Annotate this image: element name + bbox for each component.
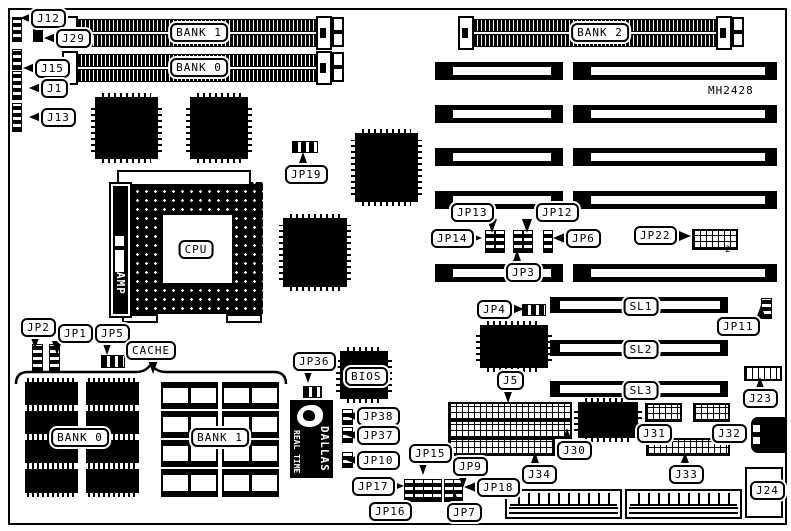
simm-clip (332, 32, 344, 47)
bios-label: BIOS (345, 367, 388, 386)
j30-header (448, 420, 572, 439)
handle-notch (115, 236, 124, 246)
leader-line (562, 428, 572, 442)
cpu-socket-handle-rail: AMP (109, 182, 132, 318)
callout-j23: J23 (743, 389, 778, 408)
leader-line (522, 219, 532, 233)
callout-jp9: JP9 (453, 457, 488, 476)
leader-line (148, 360, 158, 374)
sl1-label: SL1 (624, 297, 659, 316)
cache-chip (86, 469, 139, 493)
leader-line (679, 231, 691, 241)
leader-line (464, 482, 476, 492)
leader-line (29, 112, 41, 122)
rtc-chip: DALLAS REAL TIME (290, 400, 333, 478)
callout-j29: J29 (56, 29, 91, 48)
callout-jp19: JP19 (285, 165, 328, 184)
callout-cache: CACHE (126, 341, 176, 360)
jp22-pin2-label: 2 (725, 245, 731, 255)
cache-bank0-label: BANK 0 (51, 428, 109, 447)
cache-socket (222, 382, 279, 409)
qfp-chip (480, 325, 548, 368)
leader-line (102, 341, 112, 355)
j29-jumper (33, 29, 43, 42)
isa-slot (573, 148, 777, 166)
qfp-chip (283, 218, 347, 287)
callout-jp38: JP38 (357, 407, 400, 426)
callout-j5: J5 (497, 371, 524, 390)
callout-jp22: JP22 (634, 226, 677, 245)
j15-jumper (12, 49, 22, 70)
jp17-jumper (404, 479, 414, 502)
callout-jp15: JP15 (409, 444, 452, 463)
callout-jp17: JP17 (352, 477, 395, 496)
simm-clip (332, 67, 344, 82)
bank1-simm-label: BANK 1 (170, 23, 228, 42)
j32-header (693, 403, 730, 422)
callout-j12: J12 (31, 9, 66, 28)
isa-slot (435, 105, 563, 123)
bank0-simm-label: BANK 0 (170, 58, 228, 77)
callout-jp10: JP10 (357, 451, 400, 470)
cache-bank1-label: BANK 1 (191, 428, 249, 447)
simm-bracket (716, 16, 732, 50)
leader-line (44, 33, 56, 43)
callout-jp4: JP4 (477, 300, 512, 319)
simm-bracket (458, 16, 474, 50)
leader-line (29, 83, 41, 93)
callout-j32: J32 (712, 424, 747, 443)
jp7-jumper (432, 479, 442, 502)
callout-j33: J33 (669, 465, 704, 484)
callout-j24: J24 (750, 481, 785, 500)
handle-notch (115, 250, 124, 272)
power-connector (505, 489, 622, 519)
simm-clip (332, 52, 344, 67)
leader-line (680, 452, 690, 466)
isa-slot (573, 105, 777, 123)
callout-jp18: JP18 (477, 478, 520, 497)
power-connector (625, 489, 742, 519)
isa-slot (573, 191, 777, 209)
jp13-jumper (495, 230, 505, 253)
bank2-simm-label: BANK 2 (571, 23, 629, 42)
callout-jp36: JP36 (293, 352, 336, 371)
callout-jp12: JP12 (536, 203, 579, 222)
j5-header (448, 402, 572, 421)
cache-socket (161, 469, 218, 497)
leader-line (303, 369, 313, 383)
j31-header (645, 403, 682, 422)
cpu-socket-handle: AMP (113, 186, 128, 314)
jp4-jumper (522, 304, 546, 316)
sl2-label: SL2 (624, 340, 659, 359)
cpu-socket-lever (117, 170, 251, 186)
leader-line (298, 152, 308, 166)
callout-jp2: JP2 (21, 318, 56, 337)
cache-chip (25, 469, 78, 493)
callout-j13: J13 (41, 108, 76, 127)
callout-jp3: JP3 (506, 263, 541, 282)
dip-ic-chip (578, 402, 638, 438)
part-number: MH2428 (708, 84, 754, 97)
leader-line (756, 305, 766, 319)
leader-line (23, 63, 35, 73)
j1-jumper (12, 71, 22, 100)
callout-j1: J1 (41, 79, 68, 98)
keyboard-connector (751, 417, 786, 453)
leader-line (30, 335, 40, 349)
leader-line (52, 341, 62, 355)
cache-socket (222, 469, 279, 497)
leader-line (553, 233, 565, 243)
cpu-socket-brand: AMP (114, 272, 127, 295)
jp14-jumper (485, 230, 495, 253)
leader-line (418, 461, 428, 475)
callout-jp37: JP37 (357, 426, 400, 445)
simm-bracket (316, 51, 332, 85)
simm-clip (732, 32, 744, 47)
leader-line (512, 304, 524, 314)
simm-clip (732, 17, 744, 32)
jp36-jumper (303, 386, 322, 398)
isa-slot (435, 264, 563, 282)
simm-clip (332, 17, 344, 32)
jp6-jumper (543, 230, 553, 253)
rtc-brand: DALLAS (318, 426, 331, 472)
motherboard-diagram: BANK 1 BANK 0 J12 J29 J15 J1 J13 BANK 2 … (0, 0, 791, 531)
qfp-chip (95, 97, 158, 159)
callout-jp16: JP16 (369, 502, 412, 521)
callout-j31: J31 (637, 424, 672, 443)
leader-line (530, 452, 540, 466)
simm-bracket (316, 16, 332, 50)
leader-line (512, 250, 522, 264)
isa-slot (573, 264, 777, 282)
cache-socket (161, 382, 218, 409)
socket-foot (226, 314, 262, 323)
sl3-label: SL3 (624, 381, 659, 400)
j13-jumper (12, 103, 22, 132)
leader-line (503, 389, 513, 403)
jp12-jumper (523, 230, 533, 253)
cpu-label: CPU (179, 240, 214, 259)
callout-jp6: JP6 (566, 229, 601, 248)
callout-j15: J15 (35, 59, 70, 78)
callout-j30: J30 (557, 441, 592, 460)
isa-slot (573, 62, 777, 80)
callout-jp5: JP5 (95, 324, 130, 343)
callout-jp11: JP11 (717, 317, 760, 336)
callout-jp14: JP14 (431, 229, 474, 248)
callout-jp1: JP1 (58, 324, 93, 343)
callout-jp7: JP7 (447, 503, 482, 522)
qfp-chip (190, 97, 248, 159)
qfp-chip (355, 133, 418, 202)
callout-jp13: JP13 (451, 203, 494, 222)
rtc-line2: REAL TIME (292, 430, 301, 473)
isa-slot (435, 62, 563, 80)
callout-j34: J34 (522, 465, 557, 484)
isa-slot (435, 148, 563, 166)
